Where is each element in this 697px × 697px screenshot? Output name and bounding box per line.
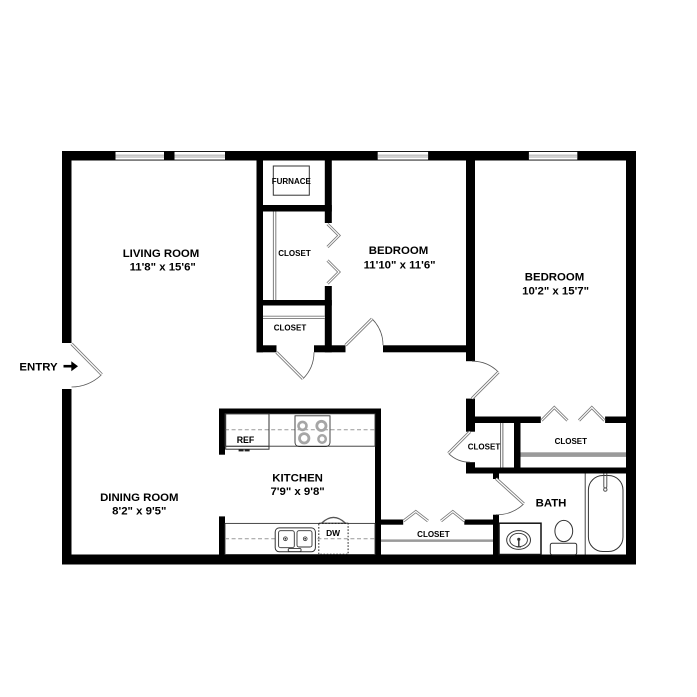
svg-text:CLOSET: CLOSET bbox=[468, 442, 501, 451]
svg-text:FURNACE: FURNACE bbox=[272, 177, 312, 186]
svg-text:BATH: BATH bbox=[536, 498, 567, 510]
svg-text:BEDROOM: BEDROOM bbox=[525, 272, 584, 284]
svg-text:BEDROOM: BEDROOM bbox=[369, 245, 428, 257]
svg-text:KITCHEN: KITCHEN bbox=[272, 472, 323, 484]
svg-text:10'2" x 15'7": 10'2" x 15'7" bbox=[522, 285, 589, 297]
svg-text:CLOSET: CLOSET bbox=[278, 249, 311, 258]
svg-text:CLOSET: CLOSET bbox=[555, 437, 588, 446]
svg-text:11'10" x 11'6": 11'10" x 11'6" bbox=[364, 260, 436, 272]
svg-text:7'9" x 9'8": 7'9" x 9'8" bbox=[270, 486, 324, 498]
svg-text:CLOSET: CLOSET bbox=[274, 324, 307, 333]
svg-text:DINING ROOM: DINING ROOM bbox=[100, 492, 178, 504]
svg-text:8'2" x 9'5": 8'2" x 9'5" bbox=[112, 506, 166, 518]
svg-text:LIVING ROOM: LIVING ROOM bbox=[123, 248, 200, 260]
svg-text:11'8" x 15'6": 11'8" x 15'6" bbox=[130, 262, 196, 274]
svg-text:ENTRY: ENTRY bbox=[19, 361, 58, 373]
svg-text:REF: REF bbox=[237, 435, 255, 445]
svg-text:CLOSET: CLOSET bbox=[417, 530, 450, 539]
svg-text:DW: DW bbox=[326, 528, 340, 538]
